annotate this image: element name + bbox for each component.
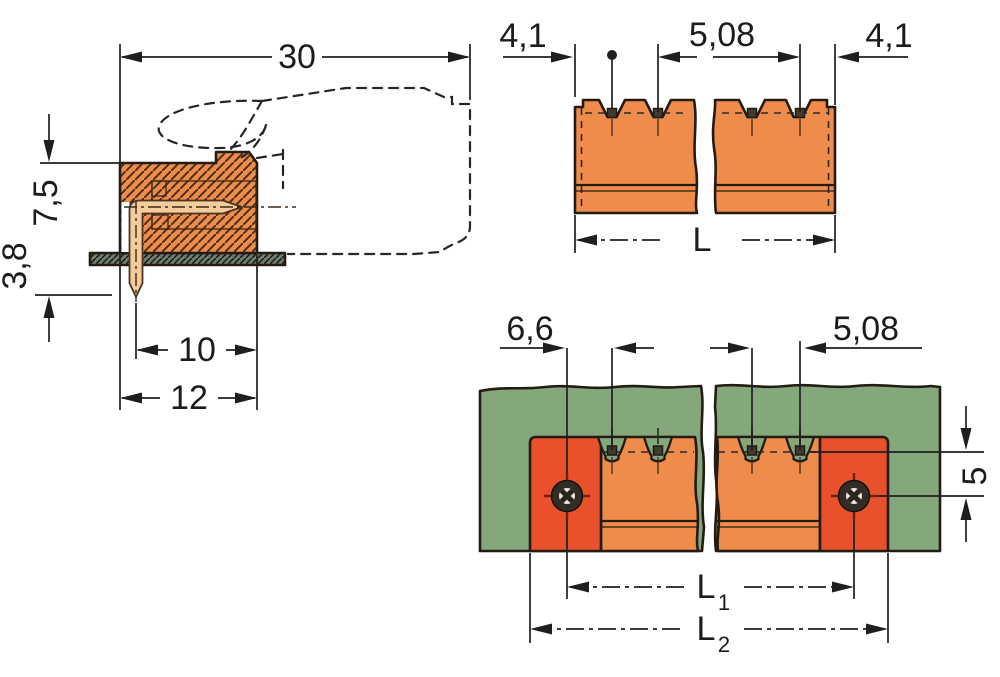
pin-pocket	[122, 202, 130, 252]
dim-end-right-label: 4,1	[865, 17, 912, 55]
dim-pitch-label: 5,08	[689, 16, 755, 54]
dim-length-label: L	[693, 221, 712, 259]
dim-body-depth-label: 12	[170, 379, 208, 417]
dim-pin-drop-label: 3,8	[0, 242, 34, 289]
dim-plan-pitch-label: 5,08	[833, 310, 899, 348]
dim-end-left-label: 4,1	[499, 17, 546, 55]
front-view: 4,1 5,08 4,1 L	[499, 16, 912, 259]
plan-view: 6,6 5,08 5 L 1 L 2	[480, 310, 994, 657]
header-strip-right	[713, 100, 835, 213]
dim-total-depth-label: 30	[278, 38, 316, 76]
dim-height-label: 7,5	[27, 179, 65, 226]
dim-l1-label: L	[697, 568, 716, 606]
dim-pin-to-screw-label: 5	[956, 467, 994, 486]
mating-plug-outline-detail	[257, 150, 283, 188]
header-strip-left	[575, 100, 697, 213]
drawing-page: 30 7,5 3,8 10 12	[0, 0, 1000, 677]
dim-l2-label: L	[697, 610, 716, 648]
dim-l2-subscript: 2	[718, 632, 730, 657]
dim-pin-to-front-label: 10	[178, 331, 216, 369]
dim-l1-subscript: 1	[718, 590, 730, 615]
mating-plug-outline-loop	[159, 101, 266, 148]
mating-plug-outline-body	[262, 88, 470, 254]
dim-screw-to-pin-label: 6,6	[506, 310, 553, 348]
pin1-marker-dot	[607, 50, 617, 60]
technical-drawing: 30 7,5 3,8 10 12	[0, 0, 1000, 677]
side-view: 30 7,5 3,8 10 12	[0, 38, 470, 417]
